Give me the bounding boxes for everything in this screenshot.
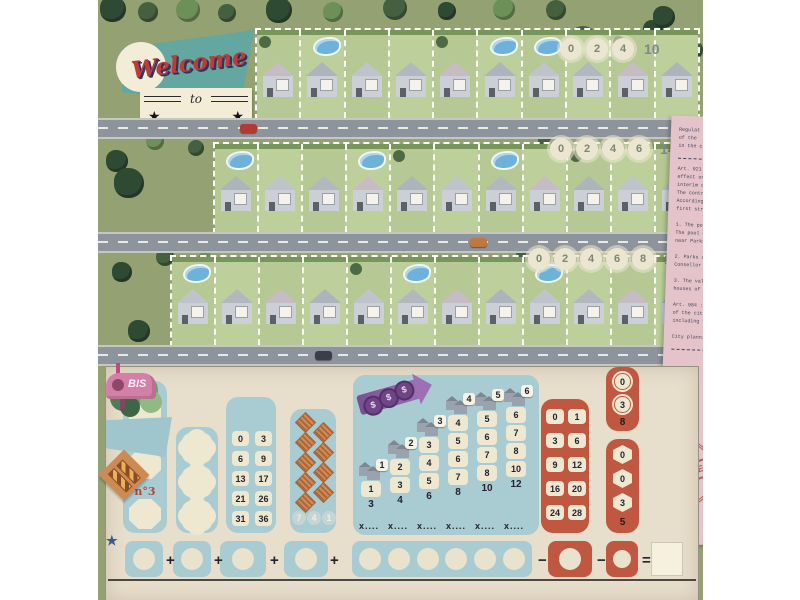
estate-value-box[interactable]: 6	[448, 451, 468, 467]
house	[221, 176, 251, 211]
house-body	[307, 76, 337, 97]
house-number-box[interactable]	[499, 306, 512, 318]
house	[396, 62, 426, 97]
temp-agency-slot[interactable]	[295, 432, 316, 453]
score-entry-circle[interactable]	[559, 548, 581, 570]
house-lot[interactable]	[346, 257, 390, 345]
score-formula-box	[173, 541, 211, 577]
house	[573, 62, 603, 97]
bis-label: BIS	[128, 378, 146, 390]
house-number-box[interactable]	[323, 306, 336, 318]
park-score-badge[interactable]: 2	[554, 248, 576, 270]
house-door	[490, 202, 496, 211]
mini-house-icon	[367, 471, 380, 480]
estate-value-box[interactable]: 10	[506, 461, 526, 477]
temp-agency-bonus: 1	[322, 511, 336, 525]
house-door	[534, 202, 540, 211]
temp-agency-slot[interactable]	[295, 452, 316, 473]
hedge	[347, 144, 389, 149]
park-score-badge[interactable]: 4	[580, 248, 602, 270]
score-entry-circle[interactable]	[613, 550, 631, 568]
house	[485, 62, 515, 97]
hedge	[656, 30, 698, 35]
score-entry-circle[interactable]	[417, 548, 439, 570]
road-center-line	[98, 127, 703, 129]
hedge	[260, 257, 302, 262]
estate-value-box[interactable]: 8	[477, 465, 497, 481]
park-score-badge[interactable]: 8	[632, 248, 654, 270]
house-roof	[484, 62, 516, 76]
mailbox-opening	[112, 379, 124, 391]
house	[574, 176, 604, 211]
temp-agency-column: 741	[290, 409, 336, 533]
pool	[358, 151, 386, 170]
house-door	[446, 202, 452, 211]
house	[574, 289, 604, 324]
house-roof	[661, 62, 693, 76]
house-body	[442, 190, 472, 211]
roundabout-slot[interactable]: 3	[612, 394, 633, 415]
tree-icon	[128, 320, 150, 342]
park-score-badge[interactable]: 0	[560, 38, 582, 60]
refusal-slot[interactable]: 0	[613, 445, 632, 464]
tree-icon	[393, 150, 405, 162]
house-door	[270, 315, 276, 324]
hedge	[567, 30, 609, 35]
bis-score-slot[interactable]: 12	[568, 457, 586, 472]
house-roof	[441, 289, 473, 303]
house-body	[266, 303, 296, 324]
house-number-box[interactable]	[453, 79, 466, 91]
house-roof	[617, 289, 649, 303]
estate-value-box[interactable]: 7	[448, 469, 468, 485]
score-entry-circle[interactable]	[503, 548, 525, 570]
house-number-box[interactable]	[586, 79, 599, 91]
house-lot[interactable]	[214, 257, 258, 345]
house-door	[578, 315, 584, 324]
pool-score-slot[interactable]: 13	[232, 471, 249, 486]
tree-icon	[266, 0, 292, 23]
house-number-box[interactable]	[543, 306, 556, 318]
house-lot[interactable]	[258, 257, 302, 345]
house	[486, 176, 516, 211]
roundabout-slot[interactable]: 0	[612, 371, 633, 392]
mini-house-icon	[425, 427, 438, 436]
bis-score-slot[interactable]: 9	[546, 457, 564, 472]
house-lot[interactable]	[478, 257, 522, 345]
bis-score-slot[interactable]: 6	[568, 433, 586, 448]
house	[352, 62, 382, 97]
house-body	[662, 76, 692, 97]
bis-score-slot[interactable]: 24	[546, 505, 564, 520]
house-number-box[interactable]	[235, 306, 248, 318]
house-lot[interactable]	[344, 30, 388, 118]
real-estate-panel: $$$x....311x....4322x....65433x....87654…	[353, 375, 539, 535]
house-roof	[262, 62, 294, 76]
house-lot[interactable]	[302, 257, 346, 345]
house-number-box[interactable]	[365, 79, 378, 91]
score-entry-circle[interactable]	[181, 548, 203, 570]
document-separator	[671, 349, 703, 352]
house-roof	[441, 176, 473, 190]
house-number-box[interactable]	[191, 306, 204, 318]
pool	[226, 151, 254, 170]
estate-value-box[interactable]: 4	[448, 415, 468, 431]
house-lot[interactable]	[257, 144, 301, 232]
house-door	[313, 202, 319, 211]
house	[310, 289, 340, 324]
house-roof	[528, 62, 560, 76]
house	[222, 289, 252, 324]
pool-score-slot[interactable]: 9	[255, 451, 272, 466]
bis-score-slot[interactable]: 3	[546, 433, 564, 448]
hedge	[215, 144, 257, 149]
house-lot[interactable]	[172, 257, 214, 345]
hedge	[611, 30, 653, 35]
house-number-box[interactable]	[366, 193, 379, 205]
estate-value-box[interactable]: 8	[506, 443, 526, 459]
temp-agency-slot[interactable]	[313, 462, 334, 483]
house-number-box[interactable]	[675, 79, 688, 91]
document-paragraph: Art. 921 effect on interim o The contr A…	[676, 165, 703, 218]
house-door	[402, 315, 408, 324]
bis-score-slot[interactable]: 28	[568, 505, 586, 520]
house-roof	[529, 176, 561, 190]
tree-icon	[546, 0, 566, 20]
estate-value-box[interactable]: 5	[477, 411, 497, 427]
minus-sign: −	[538, 552, 547, 569]
tree-icon	[438, 2, 456, 20]
pool	[403, 264, 431, 283]
document-paragraph: City plannin	[672, 333, 703, 346]
park-total-label: 10	[644, 41, 660, 57]
house-body	[574, 190, 604, 211]
park-score-slot[interactable]	[184, 503, 210, 529]
house-roof	[220, 176, 252, 190]
roundabout-max: 8	[606, 417, 639, 428]
house-number-box[interactable]	[631, 306, 644, 318]
house-number-box[interactable]	[587, 306, 600, 318]
house-roof	[221, 289, 253, 303]
house	[265, 176, 295, 211]
score-entry-circle[interactable]	[474, 548, 496, 570]
estate-multiplier-label: x....	[417, 521, 437, 531]
plus-sign: +	[214, 552, 223, 569]
house-door	[225, 202, 231, 211]
mailbox-post	[120, 399, 125, 409]
house-lot[interactable]	[476, 30, 520, 118]
minus-sign: −	[597, 552, 606, 569]
hedge	[480, 257, 522, 262]
logo-to-text: to	[190, 92, 202, 106]
document-paragraph: Regulat of the in the c	[678, 126, 703, 155]
house-number-box[interactable]	[234, 193, 247, 205]
house-lot[interactable]	[521, 30, 565, 118]
house-number-box[interactable]	[542, 79, 555, 91]
mini-house-icon	[396, 449, 409, 458]
refusal-penalty-box	[606, 541, 638, 577]
park-score-badge[interactable]: 6	[628, 138, 650, 160]
house	[398, 289, 428, 324]
house	[618, 62, 648, 97]
hedge	[172, 257, 214, 262]
estate-max-value: 12	[506, 479, 526, 490]
park-score-badge[interactable]: 0	[550, 138, 572, 160]
pool-score-slot[interactable]: 36	[255, 511, 272, 526]
hedge	[304, 257, 346, 262]
tree-icon	[493, 0, 515, 20]
roundabout-column: 038	[606, 367, 639, 431]
house-number-box[interactable]	[499, 193, 512, 205]
plus-sign: +	[270, 552, 279, 569]
park-score-badge[interactable]: 6	[606, 248, 628, 270]
estate-multiplier-label: x....	[359, 521, 379, 531]
estate-value-box[interactable]: 3	[419, 437, 439, 453]
tree-icon	[112, 262, 132, 282]
house-number-box[interactable]	[587, 193, 600, 205]
house-group-size: 5	[492, 389, 504, 401]
house-roof	[264, 176, 296, 190]
car-icon	[315, 351, 332, 360]
tree-icon	[350, 263, 362, 275]
house-door	[314, 315, 320, 324]
house-roof	[573, 176, 605, 190]
pool-score-slot[interactable]: 17	[255, 471, 272, 486]
house-roof	[395, 62, 427, 76]
estate-value-box[interactable]: 5	[419, 473, 439, 489]
house-roof	[397, 289, 429, 303]
house-door	[489, 88, 495, 97]
park-score-badge[interactable]: 0	[528, 248, 550, 270]
house	[178, 289, 208, 324]
house-lot[interactable]	[299, 30, 343, 118]
tree-icon	[188, 140, 204, 156]
score-entry-circle[interactable]	[232, 548, 254, 570]
hedge	[523, 30, 565, 35]
bis-score-slot[interactable]: 0	[546, 409, 564, 424]
hedge	[478, 30, 520, 35]
park-score-badge[interactable]: 4	[602, 138, 624, 160]
total-score-box[interactable]	[652, 543, 682, 575]
house-number-box[interactable]	[455, 306, 468, 318]
temp-agency-slot[interactable]	[295, 492, 316, 513]
house	[353, 176, 383, 211]
welcome-to-board: Welcome to ★ ★ 024100246140246818Regulat…	[98, 0, 703, 600]
house-roof	[572, 62, 604, 76]
tree-icon	[138, 2, 158, 22]
game-board-screenshot: Welcome to ★ ★ 024100246140246818Regulat…	[0, 0, 800, 600]
pool-score-slot[interactable]: 6	[232, 451, 249, 466]
mini-house-icon	[512, 397, 525, 406]
estate-value-box[interactable]: 3	[390, 477, 410, 493]
house-lot[interactable]	[215, 144, 257, 232]
temp-agency-slot[interactable]	[295, 472, 316, 493]
house-group-icon: 6	[504, 383, 530, 409]
house-group-icon: 4	[446, 391, 472, 417]
house-roof	[617, 176, 649, 190]
house-door	[400, 88, 406, 97]
house	[263, 62, 293, 97]
house	[440, 62, 470, 97]
pool-score-slot[interactable]: 21	[232, 491, 249, 506]
temp-agency-slot[interactable]	[295, 412, 316, 433]
park-score-slot[interactable]	[184, 435, 210, 461]
house	[397, 176, 427, 211]
house-roof	[177, 289, 209, 303]
house-number-box[interactable]	[279, 306, 292, 318]
house	[309, 176, 339, 211]
estate-value-box[interactable]: 2	[390, 459, 410, 475]
house	[486, 289, 516, 324]
house-door	[578, 202, 584, 211]
house-number-box[interactable]	[631, 193, 644, 205]
house-lot[interactable]	[301, 144, 345, 232]
house-number-box[interactable]	[367, 306, 380, 318]
house-roof	[265, 289, 297, 303]
house-number-box[interactable]	[276, 79, 289, 91]
house-group-size: 3	[434, 415, 446, 427]
hedge	[434, 30, 476, 35]
house-door	[622, 202, 628, 211]
house-lot[interactable]	[566, 257, 610, 345]
park-score-slot[interactable]	[184, 469, 210, 495]
house-lot[interactable]	[610, 257, 654, 345]
house-body	[442, 303, 472, 324]
pool-score-slot[interactable]: 26	[255, 491, 272, 506]
estate-value-box[interactable]: 5	[448, 433, 468, 449]
house-body	[573, 76, 603, 97]
document-paragraph: 3. The value houses of th	[673, 277, 703, 298]
pool-icon	[106, 417, 172, 457]
score-entry-circle[interactable]	[295, 548, 317, 570]
house-lot[interactable]	[388, 30, 432, 118]
equals-sign: =	[642, 552, 651, 569]
estate-value-box[interactable]: 1	[361, 481, 381, 497]
estate-value-box[interactable]: 7	[477, 447, 497, 463]
temp-agency-slot[interactable]	[313, 422, 334, 443]
house-number-box[interactable]	[409, 79, 422, 91]
refusal-slot[interactable]: 3	[613, 493, 632, 512]
bis-score-slot[interactable]: 1	[568, 409, 586, 424]
house-number-box[interactable]	[543, 193, 556, 205]
estate-max-value: 3	[361, 499, 381, 510]
hedge	[301, 30, 343, 35]
house-roof	[617, 62, 649, 76]
house-number-box[interactable]	[631, 79, 644, 91]
house-body	[398, 303, 428, 324]
estate-value-box[interactable]: 7	[506, 425, 526, 441]
temp-agency-slot[interactable]	[313, 482, 334, 503]
house-group-size: 6	[521, 385, 533, 397]
house-roof	[353, 289, 385, 303]
pool-score-slot[interactable]: 0	[232, 431, 249, 446]
tree-icon	[114, 168, 144, 198]
house-body	[353, 190, 383, 211]
house-lot[interactable]	[390, 257, 434, 345]
score-entry-circle[interactable]	[388, 548, 410, 570]
house-door	[533, 88, 539, 97]
logo-to-row: to	[140, 92, 252, 106]
document-paragraph: Art. 984 : th of the city including th	[672, 301, 703, 330]
tree-icon	[176, 0, 200, 22]
temp-agency-bonus: 7	[292, 511, 306, 525]
house-lot[interactable]	[345, 144, 389, 232]
road-center-line	[98, 354, 703, 356]
park-score-badge[interactable]: 4	[612, 38, 634, 60]
house-lot[interactable]	[433, 144, 477, 232]
house-body	[352, 76, 382, 97]
house-lot[interactable]	[478, 144, 522, 232]
house-number-box[interactable]	[322, 193, 335, 205]
bis-score-slot[interactable]: 20	[568, 481, 586, 496]
house-roof	[352, 176, 384, 190]
refusal-slot[interactable]: 0	[613, 469, 632, 488]
score-formula-box	[125, 541, 163, 577]
house-body	[618, 76, 648, 97]
house-body	[618, 303, 648, 324]
pool	[534, 37, 562, 56]
house-number-box[interactable]	[320, 79, 333, 91]
score-entry-circle[interactable]	[133, 548, 155, 570]
park-score-badge[interactable]: 2	[586, 38, 608, 60]
estate-value-box[interactable]: 6	[477, 429, 497, 445]
house	[662, 62, 692, 97]
temp-agency-slot[interactable]	[313, 442, 334, 463]
bis-score-slot[interactable]: 16	[546, 481, 564, 496]
house-door	[226, 315, 232, 324]
house-number-box[interactable]	[410, 193, 423, 205]
house	[529, 62, 559, 97]
hedge	[480, 144, 522, 149]
house-lot[interactable]	[432, 30, 476, 118]
house	[442, 176, 472, 211]
estate-value-box[interactable]: 4	[419, 455, 439, 471]
house-lot[interactable]	[389, 144, 433, 232]
house-body	[396, 76, 426, 97]
house-lot[interactable]	[434, 257, 478, 345]
hedge	[257, 30, 299, 35]
pool-score-slot[interactable]: 3	[255, 431, 272, 446]
house-lot[interactable]	[522, 257, 566, 345]
house-door	[401, 202, 407, 211]
score-formula-box	[284, 541, 328, 577]
roundabout-slot-value: 3	[614, 396, 631, 413]
house-number-box[interactable]	[278, 193, 291, 205]
house-lot[interactable]	[654, 30, 698, 118]
house-door	[267, 88, 273, 97]
estate-multiplier-label: x....	[504, 521, 524, 531]
house-number-box[interactable]	[498, 79, 511, 91]
plan-score-slot[interactable]	[129, 499, 161, 529]
house-number-box[interactable]	[411, 306, 424, 318]
parks-score-column	[176, 427, 218, 533]
document-separator	[678, 158, 703, 161]
estate-value-box[interactable]: 6	[506, 407, 526, 423]
house-number-box[interactable]	[455, 193, 468, 205]
house-roof	[308, 176, 340, 190]
house-door	[534, 315, 540, 324]
plus-sign: +	[166, 552, 175, 569]
tree-icon	[218, 4, 236, 22]
house-lot[interactable]	[257, 30, 299, 118]
hedge	[391, 144, 433, 149]
score-entry-circle[interactable]	[359, 548, 381, 570]
house-door	[356, 88, 362, 97]
score-entry-circle[interactable]	[445, 548, 467, 570]
house-group-size: 4	[463, 393, 475, 405]
pool-score-slot[interactable]: 31	[232, 511, 249, 526]
park-score-badge[interactable]: 2	[576, 138, 598, 160]
